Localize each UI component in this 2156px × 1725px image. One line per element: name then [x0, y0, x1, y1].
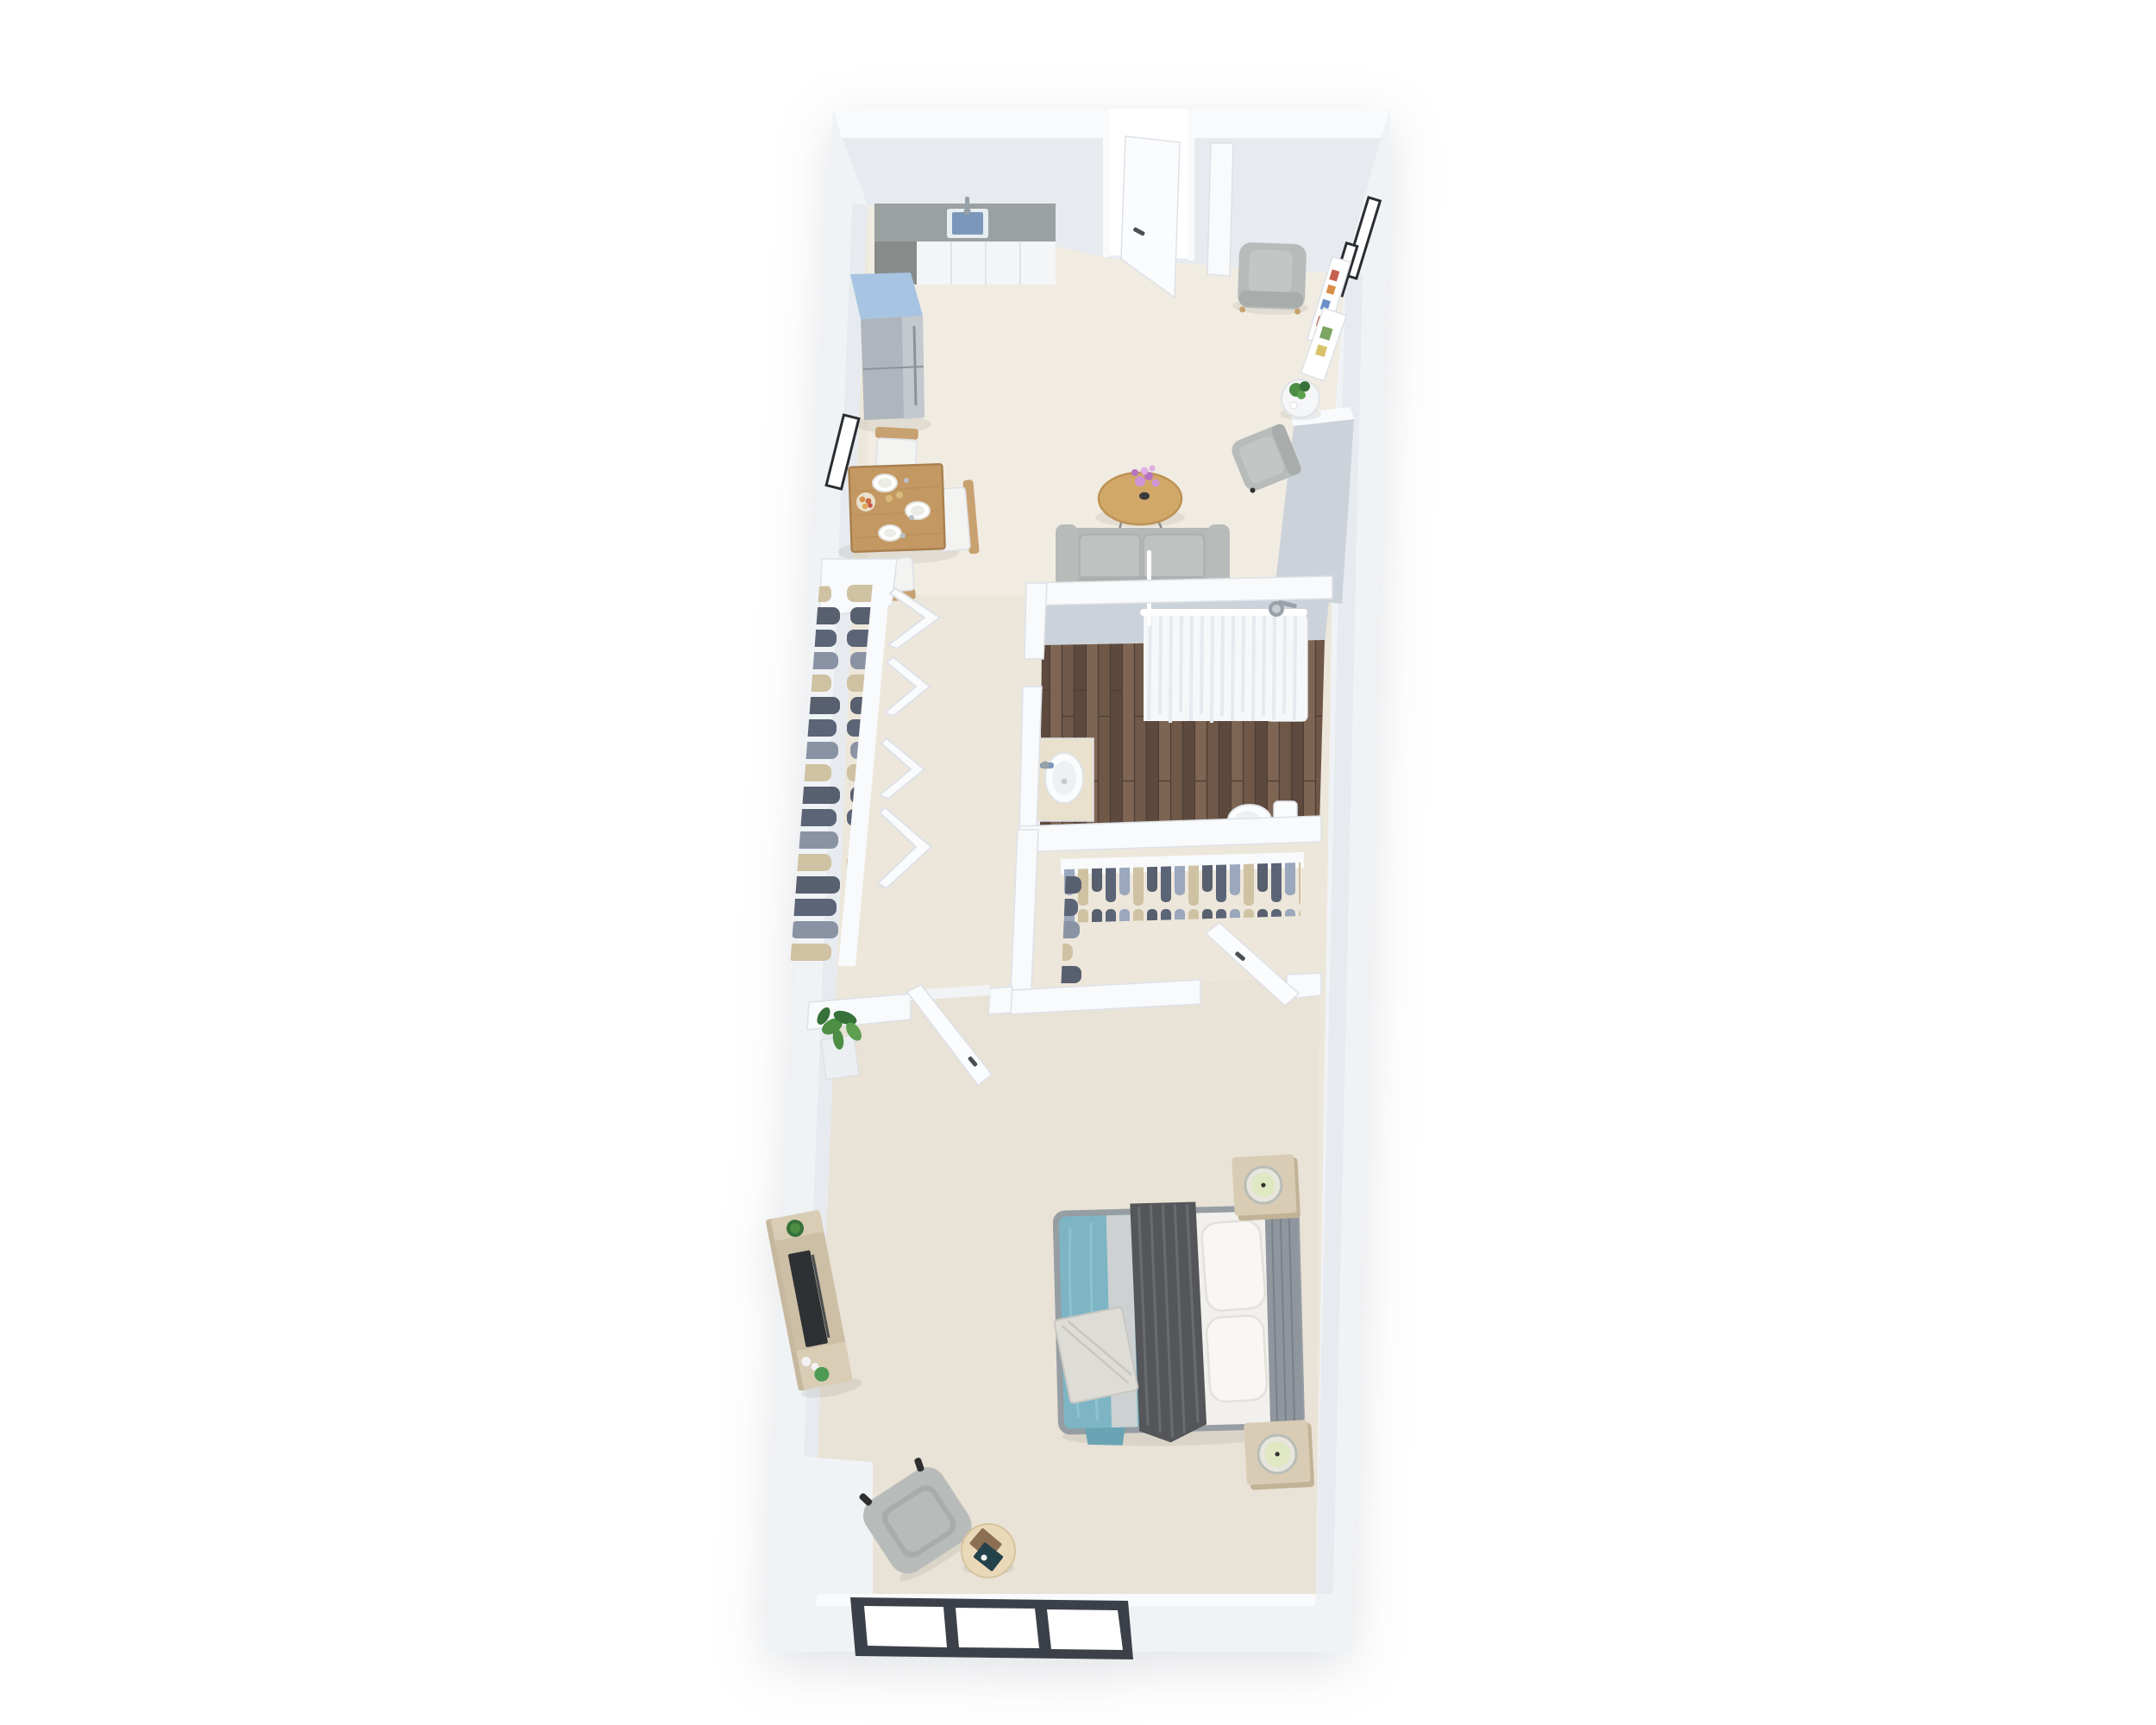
nightstand-bottom [1244, 1420, 1314, 1490]
floor-plan-canvas [0, 0, 2156, 1725]
entry-jamb-left [1103, 109, 1110, 257]
candle-top [1244, 1166, 1282, 1204]
armchair-top-right [1232, 241, 1310, 316]
nightstand-top [1232, 1154, 1300, 1221]
dining-chair-top [874, 427, 918, 470]
hall-south-wall-right [988, 987, 1012, 1014]
kitchen-sink-basin [952, 212, 983, 235]
fruit-bowl [856, 492, 875, 511]
entry-pier [1207, 143, 1233, 276]
pillow-top [1200, 1220, 1266, 1312]
bedroom-side-table [962, 1524, 1015, 1578]
candle [896, 492, 904, 499]
kitchen-faucet-head [964, 208, 971, 215]
closet-hanging-clothes-north [1064, 862, 1300, 923]
bedroom-window [850, 1597, 1133, 1659]
candle [886, 495, 893, 503]
entry-jamb-right [1188, 109, 1194, 260]
bathroom-west-wall-upper [1025, 583, 1047, 659]
pillow-bottom [1206, 1314, 1268, 1402]
apartment-3d-floor-plan [0, 0, 2156, 1725]
bathroom-vanity [1031, 738, 1094, 823]
refrigerator-top [850, 273, 923, 319]
bed [1051, 1199, 1306, 1448]
bathroom [1018, 550, 1332, 852]
side-table-living [1280, 379, 1321, 420]
candle-bottom [1257, 1434, 1297, 1474]
